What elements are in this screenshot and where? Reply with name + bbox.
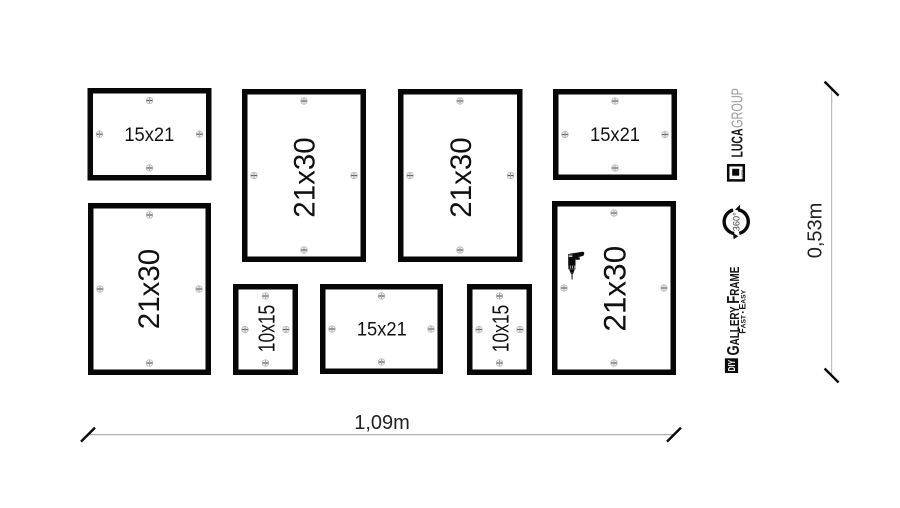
svg-text:21x30: 21x30 — [289, 137, 322, 217]
svg-text:21x30: 21x30 — [597, 246, 633, 332]
svg-text:15x21: 15x21 — [124, 124, 174, 146]
svg-text:10x15: 10x15 — [490, 305, 515, 352]
svg-text:21x30: 21x30 — [445, 137, 478, 217]
svg-text:21x30: 21x30 — [133, 249, 166, 329]
svg-text:10x15: 10x15 — [256, 305, 281, 352]
svg-text:0,53m: 0,53m — [805, 203, 827, 259]
svg-text:GALLERY FRAME: GALLERY FRAME — [724, 267, 743, 356]
svg-text:DIY: DIY — [727, 360, 738, 372]
svg-text:1,09m: 1,09m — [354, 412, 410, 434]
svg-text:360°: 360° — [732, 212, 742, 231]
svg-text:15x21: 15x21 — [357, 319, 407, 341]
svg-text:LUCA: LUCA — [741, 169, 745, 179]
svg-text:LUCAGROUP: LUCAGROUP — [730, 88, 747, 157]
svg-text:15x21: 15x21 — [590, 125, 640, 147]
